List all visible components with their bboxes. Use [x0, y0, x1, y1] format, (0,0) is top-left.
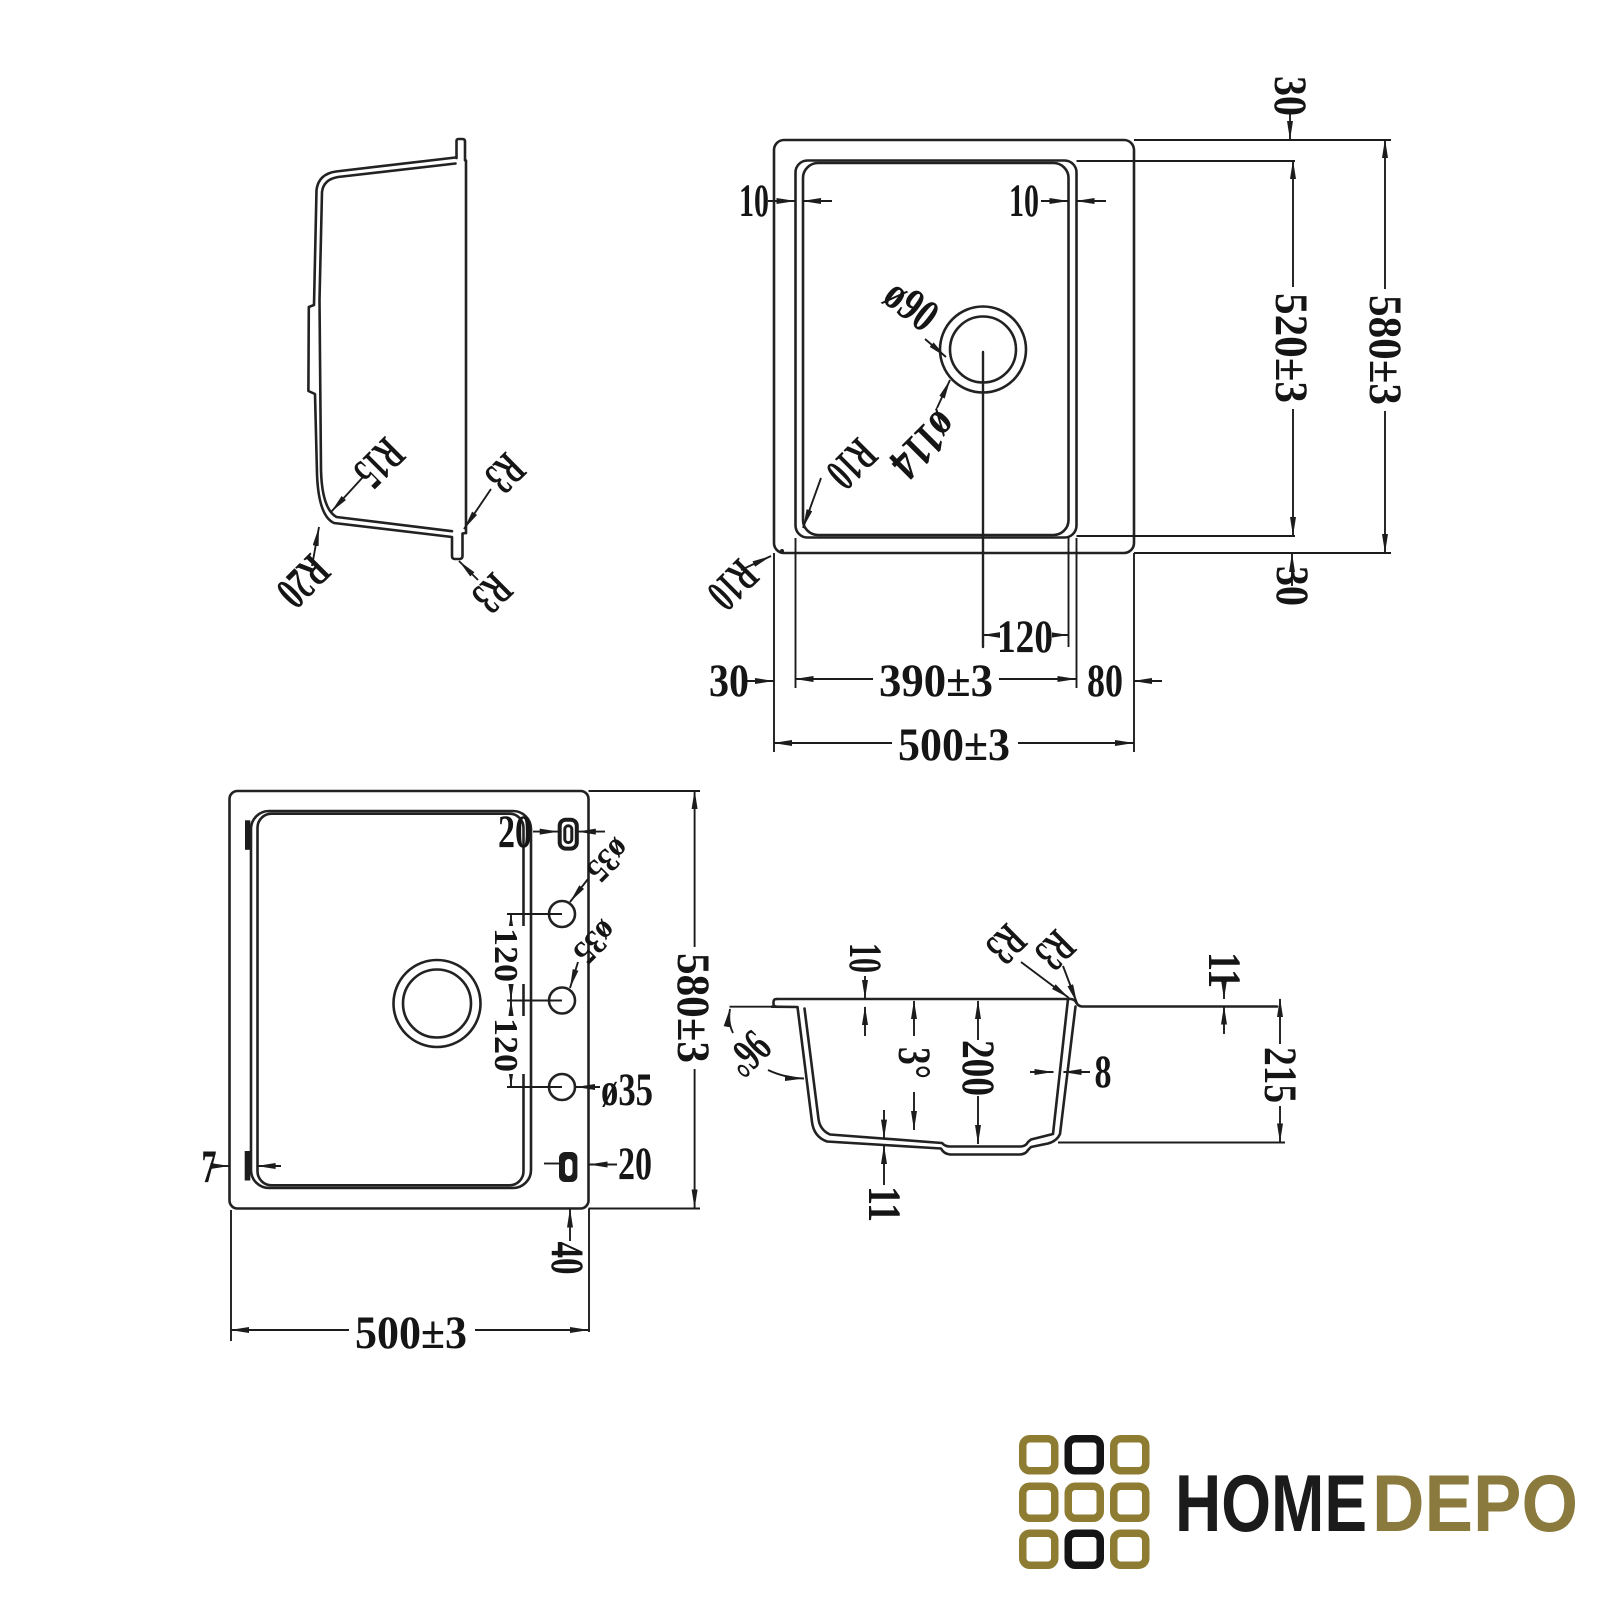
svg-text:R10: R10: [697, 549, 768, 620]
svg-text:40: 40: [541, 1242, 593, 1275]
svg-text:580±3: 580±3: [1359, 295, 1411, 405]
svg-text:ø35: ø35: [566, 913, 625, 972]
svg-text:20: 20: [498, 806, 532, 858]
svg-text:390±3: 390±3: [879, 655, 993, 707]
svg-text:R10: R10: [816, 428, 887, 499]
svg-text:HOMEDEPO: HOMEDEPO: [1175, 1459, 1578, 1549]
svg-text:96°: 96°: [714, 1020, 780, 1086]
svg-text:11: 11: [858, 1186, 910, 1222]
svg-text:10: 10: [739, 175, 769, 227]
svg-text:ø90: ø90: [874, 268, 949, 342]
svg-text:215: 215: [1254, 1047, 1306, 1103]
svg-text:200: 200: [952, 1040, 1004, 1096]
svg-text:80: 80: [1087, 655, 1123, 707]
svg-text:10: 10: [1009, 175, 1039, 227]
svg-text:7: 7: [202, 1141, 217, 1193]
svg-text:120: 120: [487, 928, 524, 982]
svg-text:R20: R20: [266, 544, 340, 618]
svg-text:8: 8: [1095, 1046, 1112, 1098]
svg-text:120: 120: [997, 611, 1053, 663]
svg-text:30: 30: [1264, 76, 1316, 116]
svg-text:ø114: ø114: [879, 400, 968, 489]
svg-text:10: 10: [839, 943, 891, 973]
svg-text:R3: R3: [475, 443, 535, 503]
svg-text:20: 20: [618, 1138, 652, 1190]
svg-text:500±3: 500±3: [355, 1307, 467, 1359]
svg-text:11: 11: [1198, 952, 1250, 988]
svg-text:ø35: ø35: [601, 1064, 653, 1116]
svg-text:500±3: 500±3: [898, 719, 1010, 771]
svg-text:3°: 3°: [888, 1047, 940, 1079]
svg-text:30: 30: [709, 655, 749, 707]
svg-text:520±3: 520±3: [1265, 293, 1317, 403]
svg-text:580±3: 580±3: [667, 953, 719, 1063]
svg-text:30: 30: [1266, 566, 1318, 606]
svg-text:120: 120: [487, 1018, 524, 1072]
